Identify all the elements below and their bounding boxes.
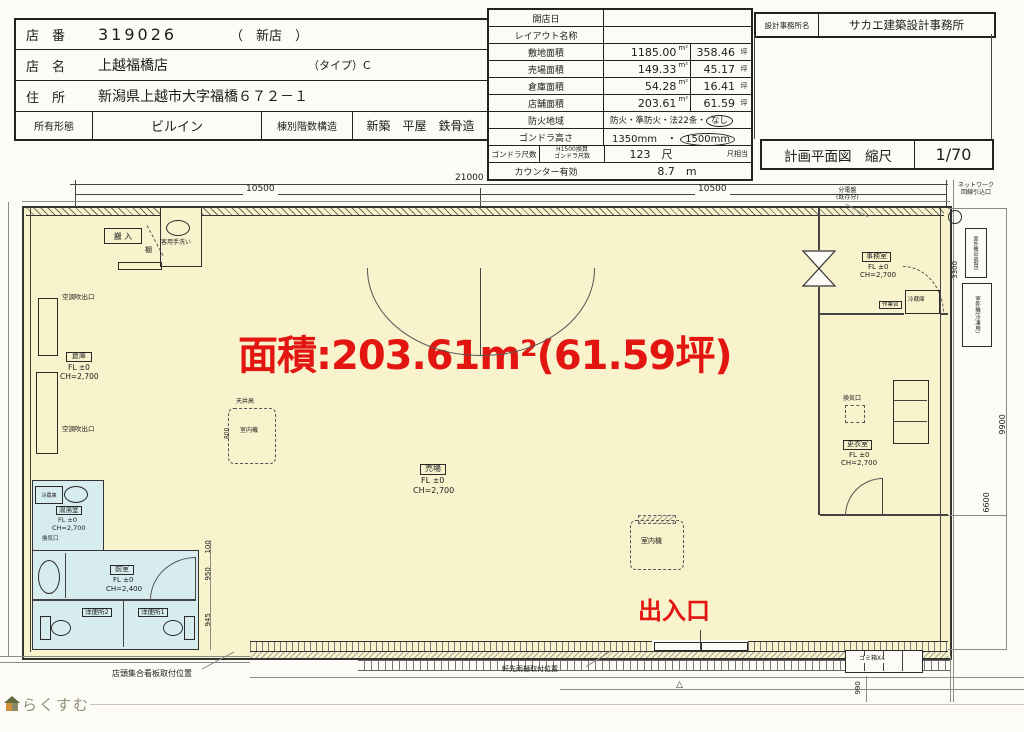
dim-total: 21000 bbox=[455, 174, 484, 184]
drawing-title-block: 計画平面図 縮尺 1/70 bbox=[760, 139, 994, 170]
dim-line-10500 bbox=[75, 194, 946, 195]
store-area-label: 店舗面積 bbox=[489, 95, 604, 111]
room-souko-ch: CH=2,700 bbox=[60, 373, 99, 381]
titleblock-right-rule bbox=[991, 34, 992, 139]
store-number-extra: （ 新店 ） bbox=[230, 25, 308, 44]
shelf-counter bbox=[118, 262, 162, 270]
network-label-line2: 回線引込口 bbox=[961, 189, 991, 196]
room-zenshitsu-fl: FL ±0 bbox=[113, 577, 133, 585]
dim-990: 990 bbox=[855, 681, 863, 694]
store-name-row: 店 名 上越福橋店 （タイプ）C bbox=[16, 49, 488, 80]
room-souko-name: 倉庫 bbox=[66, 352, 92, 362]
counter-label: カウンター有効 bbox=[489, 163, 603, 179]
datum-triangle: △ bbox=[676, 681, 683, 691]
store-address-row: 住 所 新潟県上越市大字福橋６７２－１ bbox=[16, 80, 488, 111]
fire-zone-label: 防火地域 bbox=[489, 112, 604, 128]
dim-3300: 3300 bbox=[952, 261, 960, 279]
room-koui-name: 更衣室 bbox=[843, 440, 872, 450]
store-name-value: 上越福橋店 bbox=[98, 55, 308, 75]
vent-label: 換気口 bbox=[843, 396, 861, 403]
ownership-value: ビルイン bbox=[93, 112, 262, 139]
locker-shelf-line-1 bbox=[893, 400, 927, 401]
gondola-height-label: ゴンドラ高さ bbox=[489, 129, 604, 145]
room-souko-fl: FL ±0 bbox=[68, 364, 90, 372]
open-date-row: 開店日 bbox=[489, 10, 751, 26]
panelboard-label: 分電盤 (既存分) bbox=[836, 188, 859, 201]
titleblock-left-rule bbox=[754, 34, 755, 139]
site-boundary-left bbox=[8, 202, 9, 656]
store-address-value: 新潟県上越市大字福橋６７２－１ bbox=[98, 86, 308, 106]
room-uriba-name: 売場 bbox=[420, 464, 446, 475]
gondola-height-value: 1350mm ・ 1500mm bbox=[604, 130, 735, 145]
changing-room-door-leaf bbox=[882, 478, 883, 515]
floor-plan-sheet: 店 番 319026 （ 新店 ） 店 名 上越福橋店 （タイプ）C 住 所 新… bbox=[0, 0, 1024, 732]
sidewalk-line-3 bbox=[250, 677, 1024, 678]
signboard-label: 店頭集合看板取付位置 bbox=[112, 670, 192, 679]
locker-shelf-line-2 bbox=[893, 421, 927, 422]
warehouse-area-label: 倉庫面積 bbox=[489, 78, 604, 94]
vent-box bbox=[845, 405, 865, 423]
fire-zone-row: 防火地域 防火・準防火・法22条・なし bbox=[489, 111, 751, 128]
store-number-row: 店 番 319026 （ 新店 ） bbox=[16, 20, 488, 49]
dim-left-10500: 10500 bbox=[243, 185, 278, 195]
rakusumu-house-icon bbox=[4, 696, 20, 712]
entry-door-leaf bbox=[480, 268, 481, 355]
entrance-center-mark bbox=[700, 630, 701, 652]
outdoor-unit-ac-label: 室外機(空調用) bbox=[973, 236, 980, 270]
network-label: ネットワーク 回線引込口 bbox=[958, 183, 994, 196]
delivery-box: 搬 入 bbox=[104, 228, 142, 244]
delivery-label: 搬 入 bbox=[114, 231, 133, 242]
store-info-table: 店 番 319026 （ 新店 ） 店 名 上越福橋店 （タイプ）C 住 所 新… bbox=[14, 18, 490, 141]
site-area-tsubo: 358.46 bbox=[691, 46, 735, 59]
sales-area-row: 売場面積 149.33m² 45.17 坪 bbox=[489, 60, 751, 77]
outdoor-unit-freezer: 室外機(冷凍用) bbox=[962, 283, 992, 347]
design-office-block: 設計事務所名 サカエ建築設計事務所 bbox=[754, 12, 996, 38]
kitchen-fridge-label: 冷蔵庫 bbox=[41, 492, 56, 499]
counter-value: 8.7 m bbox=[603, 163, 751, 179]
site-boundary-right bbox=[953, 180, 954, 702]
indoor-unit-2-label: 室内機 bbox=[641, 538, 662, 546]
site-area-row: 敷地面積 1185.00m² 358.46 坪 bbox=[489, 43, 751, 60]
dim-100: 100 bbox=[205, 540, 213, 553]
dim-line-21000 bbox=[70, 184, 948, 185]
handwash-sink-icon bbox=[166, 220, 190, 236]
storefront-glazing bbox=[250, 641, 948, 652]
bottom-faint-line bbox=[90, 704, 1024, 705]
ac-outlet-label-2: 空調吹出口 bbox=[62, 426, 95, 433]
panelboard-line2: (既存分) bbox=[836, 194, 859, 201]
warehouse-area-tsubo-unit: 坪 bbox=[735, 81, 753, 91]
toilet-stall-divider bbox=[123, 600, 124, 647]
sales-area-m2: 149.33m² bbox=[604, 61, 691, 77]
toilet2-bowl bbox=[51, 620, 71, 636]
kitchen-fridge-box: 冷蔵庫 bbox=[35, 486, 63, 504]
site-area-m2: 1185.00m² bbox=[604, 44, 691, 60]
double-swing-door-icon bbox=[801, 250, 837, 287]
room-zenshitsu-ch: CH=2,400 bbox=[106, 586, 142, 594]
office-fridge-label: 冷蔵庫 bbox=[908, 297, 925, 303]
dim-950: 950 bbox=[205, 567, 213, 580]
design-office-label: 設計事務所名 bbox=[756, 14, 819, 36]
locker-shelf bbox=[893, 380, 929, 444]
ac-duct-2 bbox=[36, 372, 58, 454]
toilet1-bowl bbox=[163, 620, 183, 636]
toilet2-tank bbox=[40, 616, 51, 640]
sidewalk-line-1 bbox=[0, 656, 250, 657]
network-inlet-icon bbox=[948, 210, 962, 224]
room-koui-ch: CH=2,700 bbox=[841, 460, 877, 468]
sales-area-tsubo-unit: 坪 bbox=[735, 64, 753, 74]
sales-area-label: 売場面積 bbox=[489, 61, 604, 77]
toilet-dim-line bbox=[210, 540, 211, 650]
ceiling-height-label: 天井高 bbox=[236, 399, 254, 406]
counter-row: カウンター有効 8.7 m bbox=[489, 162, 751, 179]
indoor-unit-1-label: 室内機 bbox=[240, 428, 258, 435]
store-type: （タイプ）C bbox=[308, 57, 371, 73]
structure-value: 新築 平屋 鉄骨造 bbox=[353, 117, 488, 134]
gondola-scale-value: 123 尺 bbox=[605, 146, 697, 162]
dim-tick-mid bbox=[480, 188, 481, 206]
open-date-label: 開店日 bbox=[489, 10, 604, 26]
changing-room-wall bbox=[820, 514, 948, 516]
room-yuwakashi-ch: CH=2,700 bbox=[52, 525, 85, 532]
sales-area-tsubo: 45.17 bbox=[691, 63, 735, 76]
gondola-scale-note: 尺相当 bbox=[697, 149, 751, 159]
trash-label: ゴミ箱X4 bbox=[858, 656, 886, 663]
indoor-unit-1-box bbox=[228, 408, 276, 464]
gondola-height-row: ゴンドラ高さ 1350mm ・ 1500mm bbox=[489, 128, 751, 145]
toilet1-tank bbox=[184, 616, 195, 640]
basin-icon bbox=[38, 560, 60, 594]
right-dim-tick-mid bbox=[948, 515, 1006, 516]
right-wall-seg-1 bbox=[818, 208, 820, 250]
store-address-label: 住 所 bbox=[16, 87, 98, 106]
sidewalk-line-4 bbox=[560, 689, 1024, 690]
room-jimu-ch: CH=2,700 bbox=[860, 272, 896, 280]
entrance-door-leaf-right bbox=[701, 642, 748, 651]
gutter-label: 軒先雨樋取付位置 bbox=[502, 666, 558, 674]
outdoor-unit-freezer-label: 室外機(冷凍用) bbox=[973, 296, 981, 333]
store-area-row: 店舗面積 203.61m² 61.59 坪 bbox=[489, 94, 751, 111]
sidewalk-corner-v bbox=[950, 656, 951, 702]
trash-dim-line bbox=[866, 676, 867, 702]
insulation-line-top bbox=[22, 201, 950, 202]
right-dim-tick-top bbox=[948, 208, 1006, 209]
right-wall-inner bbox=[940, 208, 941, 652]
room-zenshitsu-name: 前室 bbox=[110, 565, 134, 575]
dim-945: 945 bbox=[205, 613, 213, 626]
layout-name-row: レイアウト名称 bbox=[489, 26, 751, 43]
left-wall-inner bbox=[30, 208, 31, 652]
house-body bbox=[6, 703, 18, 711]
site-area-tsubo-unit: 坪 bbox=[735, 47, 753, 57]
fire-zone-circled: なし bbox=[706, 115, 733, 127]
warehouse-area-tsubo: 16.41 bbox=[691, 80, 735, 93]
outdoor-unit-ac: 室外機(空調用) bbox=[965, 228, 987, 278]
gondola-scale-label: ゴンドラ尺数 bbox=[489, 146, 540, 162]
gondola-scale-row: ゴンドラ尺数 H1500換算ゴンドラ尺数 123 尺 尺相当 bbox=[489, 145, 751, 162]
gondola-height-circled: 1500mm bbox=[680, 133, 735, 146]
indoor-unit-2-tag bbox=[638, 515, 676, 524]
dim-6600: 6600 bbox=[983, 492, 992, 512]
fire-zone-value: 防火・準防火・法22条・なし bbox=[604, 114, 733, 126]
room-jimu-name: 事務室 bbox=[862, 252, 891, 262]
worktable-label: 作業台 bbox=[879, 301, 902, 309]
store-number-value: 319026 bbox=[98, 25, 230, 44]
store-area-m2: 203.61m² bbox=[604, 95, 691, 111]
dim-9900: 9900 bbox=[999, 414, 1008, 434]
wc2-label: 洋便所2 bbox=[82, 608, 112, 617]
warehouse-area-row: 倉庫面積 54.28m² 16.41 坪 bbox=[489, 77, 751, 94]
structure-label: 棟別階数構造 bbox=[262, 112, 353, 139]
dim-800: 800 bbox=[224, 428, 231, 439]
store-number-label: 店 番 bbox=[16, 25, 98, 44]
trash-divider-3 bbox=[902, 650, 903, 671]
dim-tick-right bbox=[946, 180, 947, 206]
room-uriba-fl: FL ±0 bbox=[421, 477, 444, 486]
ownership-label: 所有形態 bbox=[16, 112, 93, 139]
house-roof bbox=[4, 696, 20, 703]
zenshitsu-door-leaf bbox=[195, 557, 196, 599]
ownership-row: 所有形態 ビルイン 棟別階数構造 新築 平屋 鉄骨造 bbox=[16, 111, 488, 139]
dim-right-10500: 10500 bbox=[695, 185, 730, 195]
store-area-tsubo: 61.59 bbox=[691, 97, 735, 110]
basin-nook-wall bbox=[65, 553, 66, 598]
warehouse-area-m2: 54.28m² bbox=[604, 78, 691, 94]
ac-duct-1 bbox=[38, 298, 58, 356]
ac-outlet-label-1: 空調吹出口 bbox=[62, 294, 95, 301]
office-wall-seg-1 bbox=[820, 313, 904, 315]
room-uriba-ch: CH=2,700 bbox=[413, 487, 454, 496]
shelf-label: 棚 bbox=[145, 247, 152, 255]
handwash-label: 客用手洗い bbox=[161, 240, 191, 247]
entrance-door-leaf-left bbox=[654, 642, 701, 651]
drawing-title: 計画平面図 縮尺 bbox=[762, 141, 915, 168]
kitchen-sink-icon bbox=[64, 486, 88, 503]
dim-tick-left bbox=[75, 180, 76, 206]
store-area-tsubo-unit: 坪 bbox=[735, 98, 753, 108]
gondola-scale-sublabel: H1500換算ゴンドラ尺数 bbox=[540, 146, 605, 162]
right-dim-tick-bottom bbox=[948, 649, 1006, 650]
right-wall-seg-2 bbox=[818, 287, 820, 515]
layout-name-label: レイアウト名称 bbox=[489, 27, 604, 43]
drawing-scale: 1/70 bbox=[915, 145, 992, 164]
kitchen-vent-label: 換気口 bbox=[42, 536, 59, 542]
spec-table: 開店日 レイアウト名称 敷地面積 1185.00m² 358.46 坪 売場面積… bbox=[487, 8, 753, 181]
store-name-label: 店 名 bbox=[16, 56, 98, 75]
entrance-annotation: 出入口 bbox=[638, 598, 710, 624]
wc1-label: 洋便所1 bbox=[138, 608, 168, 617]
room-yuwakashi-name: 湯沸室 bbox=[56, 506, 82, 515]
watermark-text: らくすむ bbox=[22, 697, 90, 714]
handwash-room bbox=[160, 208, 202, 267]
site-area-label: 敷地面積 bbox=[489, 44, 604, 60]
design-office-value: サカエ建築設計事務所 bbox=[819, 17, 994, 33]
